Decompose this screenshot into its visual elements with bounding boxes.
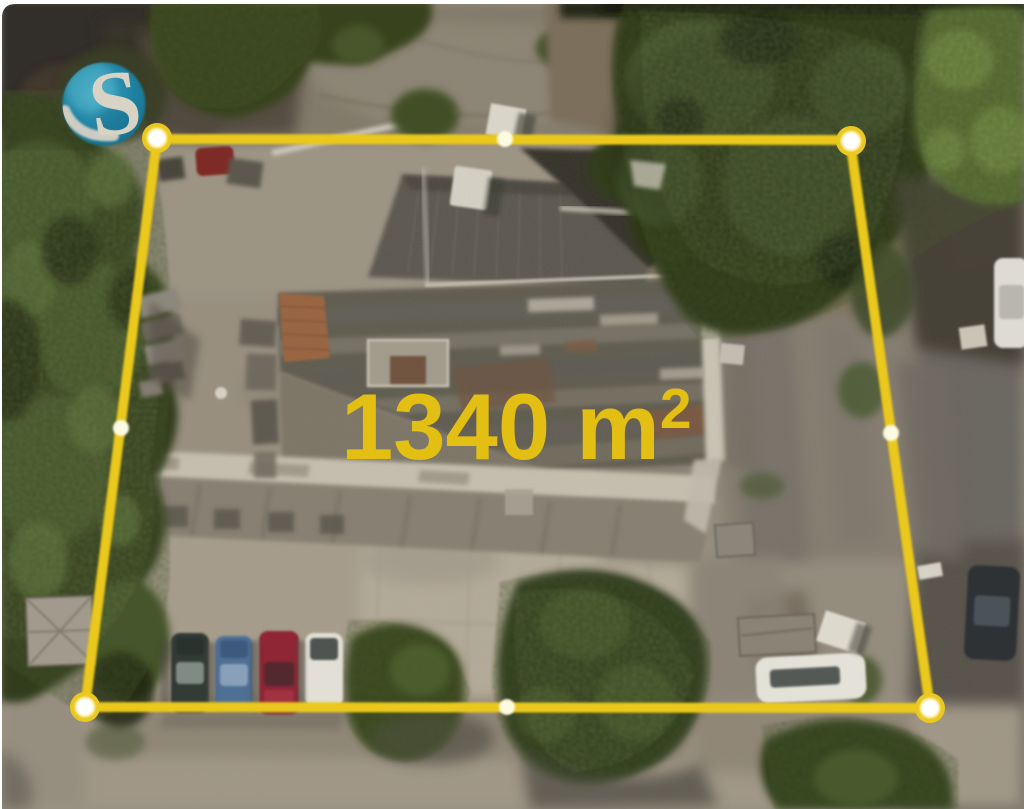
svg-text:1340 m2: 1340 m2 (341, 374, 692, 479)
